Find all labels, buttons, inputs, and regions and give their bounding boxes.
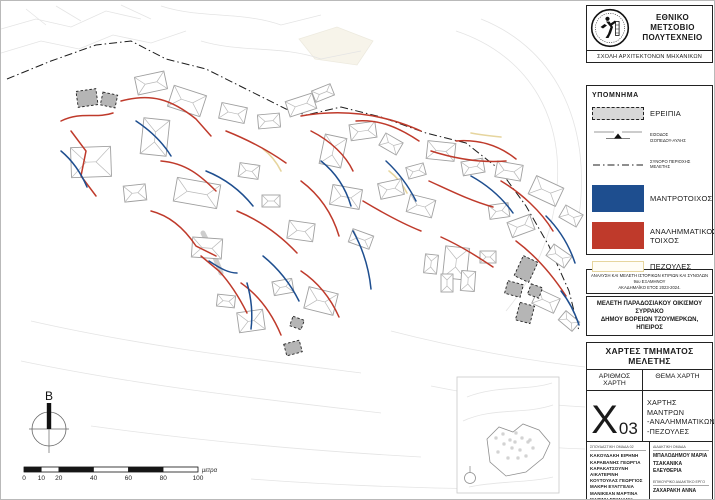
students-column: ΣΠΟΥΔΑΣΤΙΚΗ ΟΜΑΔΑ 02 ΚΑΚΟΥΔΑΚΗ ΕΙΡΗΝΗΚΑΡ…: [587, 442, 650, 500]
legend-item-retaining-wall: ΑΝΑΛΗΜΜΑΤΙΚΟΣ ΤΟΙΧΟΣ: [592, 222, 707, 249]
course-box: ΑΝΑΛΥΣΗ ΚΑΙ ΜΕΛΕΤΗ ΙΣΤΟΡΙΚΩΝ ΚΤΙΡΙΩΝ ΚΑΙ…: [586, 269, 713, 294]
legend-title: ΥΠΟΜΝΗΜΑ: [592, 92, 707, 99]
assistants-header: ΕΠΙΚΟΥΡΙΚΟ ΔΙΔΑΚΤΙΚΟ ΕΡΓΟ: [653, 480, 709, 486]
legend-label: ΕΡΕΙΠΙΑ: [650, 109, 681, 118]
assistants-list: ΖΑΧΑΡΑΚΗ ΑΝΝΑ: [653, 488, 709, 496]
boundary-line-symbol: [592, 155, 644, 173]
blue-wall-swatch: [592, 185, 644, 212]
svg-text:40: 40: [90, 475, 98, 482]
map-theme: ΧΑΡΤΗΣ ΜΑΝΤΡΩΝ -ΑΝΑΛΗΜΜΑΤΙΚΩΝ -ΠΕΖΟΥΛΕΣ: [643, 391, 715, 441]
svg-text:100: 100: [193, 475, 204, 482]
credits: ΣΠΟΥΔΑΣΤΙΚΗ ΟΜΑΔΑ 02 ΚΑΚΟΥΔΑΚΗ ΕΙΡΗΝΗΚΑΡ…: [587, 442, 712, 500]
legend-label: ΑΝΑΛΗΜΜΑΤΙΚΟΣ ΤΟΙΧΟΣ: [650, 227, 715, 245]
map-number: X 03: [587, 391, 643, 441]
legend-label: ΠΕΖΟΥΛΕΣ: [650, 262, 691, 271]
course-line: ΑΝΑΛΥΣΗ ΚΑΙ ΜΕΛΕΤΗ ΙΣΤΟΡΙΚΩΝ ΚΤΙΡΙΩΝ ΚΑΙ…: [589, 273, 710, 279]
svg-text:μετρα: μετρα: [201, 468, 218, 474]
credit-name: ΚΑΚΟΥΔΑΚΗ ΕΙΡΗΝΗ: [590, 453, 646, 459]
legend-item-boundary: ΣΥΝΟΡΟ ΠΕΡΙΟΧΗΣ ΜΕΛΕΤΗΣ: [592, 155, 707, 173]
credit-name: ΜΠΑΛΟΔΗΜΟΥ ΜΑΡΙΑ: [653, 453, 709, 461]
legend-item-entrance: ΕΙΣΟΔΟΣ ΙΣΟΠΕΔΟΥ-ΑΥΛΗΣ: [592, 128, 707, 147]
legend-item-mantrotoichos: ΜΑΝΤΡΟΤΟΙΧΟΣ: [592, 185, 707, 212]
teachers-header: ΔΙΔΑΚΤΙΚΗ ΟΜΑΔΑ: [653, 445, 709, 451]
map-table: ΧΑΡΤΕΣ ΤΜΗΜΑΤΟΣ ΜΕΛΕΤΗΣ ΑΡΙΘΜΟΣ ΧΑΡΤΗ ΘΕ…: [586, 342, 713, 500]
students-header: ΣΠΟΥΔΑΣΤΙΚΗ ΟΜΑΔΑ 02: [590, 445, 646, 451]
university-name-line: ΜΕΤΣΟΒΙΟ: [633, 23, 712, 33]
village-map-svg: Β01020406080100μετρα: [1, 1, 586, 500]
university-box: ΕΘΝΙΚΟ ΜΕΤΣΟΒΙΟ ΠΟΛΥΤΕΧΝΕΙΟ ΣΧΟΛΗ ΑΡΧΙΤΕ…: [586, 5, 713, 63]
school-name: ΣΧΟΛΗ ΑΡΧΙΤΕΚΤΟΝΩΝ ΜΗΧΑΝΙΚΩΝ: [587, 50, 712, 62]
ruins-swatch: [592, 107, 644, 120]
university-name: ΕΘΝΙΚΟ ΜΕΤΣΟΒΙΟ ΠΟΛΥΤΕΧΝΕΙΟ: [633, 13, 712, 43]
red-wall-swatch: [592, 222, 644, 249]
legend-item-pezoules: ΠΕΖΟΥΛΕΣ: [592, 261, 707, 272]
drawing-sheet: Β01020406080100μετρα: [0, 0, 715, 500]
project-title-box: ΜΕΛΕΤΗ ΠΑΡΑΔΟΣΙΑΚΟΥ ΟΙΚΙΣΜΟΥ ΣΥΡΡΑΚΟ ΔΗΜ…: [586, 296, 713, 336]
credit-name: ΤΣΑΚΑΝΙΚΑ ΕΛΕΥΘΕΡΙΑ: [653, 461, 709, 476]
project-title-line: ΜΕΛΕΤΗ ΠΑΡΑΔΟΣΙΑΚΟΥ ΟΙΚΙΣΜΟΥ ΣΥΡΡΑΚΟ: [588, 300, 711, 316]
credit-name: ΖΑΧΑΡΑΚΗ ΑΝΝΑ: [653, 488, 709, 496]
university-name-line: ΕΘΝΙΚΟ: [633, 13, 712, 23]
svg-text:Β: Β: [45, 389, 53, 403]
ntua-seal-icon: [590, 8, 630, 48]
legend-label: ΜΑΝΤΡΟΤΟΙΧΟΣ: [650, 194, 712, 203]
ntua-seal: [587, 8, 633, 48]
entrance-symbol: [592, 128, 644, 147]
title-block: ΕΘΝΙΚΟ ΜΕΤΣΟΒΙΟ ΠΟΛΥΤΕΧΝΕΙΟ ΣΧΟΛΗ ΑΡΧΙΤΕ…: [586, 5, 713, 500]
map-table-title: ΧΑΡΤΕΣ ΤΜΗΜΑΤΟΣ ΜΕΛΕΤΗΣ: [587, 343, 712, 370]
map-number-main: X: [591, 403, 618, 437]
col-header-map-number: ΑΡΙΘΜΟΣ ΧΑΡΤΗ: [587, 370, 643, 390]
project-title-line: ΔΗΜΟΥ ΒΟΡΕΙΩΝ ΤΖΟΥΜΕΡΚΩΝ, ΗΠΕΙΡΟΣ: [588, 316, 711, 332]
boundary-line-icon: [592, 162, 644, 168]
teachers-list: ΜΠΑΛΟΔΗΜΟΥ ΜΑΡΙΑΤΣΑΚΑΝΙΚΑ ΕΛΕΥΘΕΡΙΑ: [653, 453, 709, 476]
credit-name: ΚΑΡΑΚΑΤΣΟΥΝΗ ΑΙΚΑΤΕΡΙΝΗ: [590, 466, 646, 478]
entrance-symbol-icon: [592, 128, 644, 142]
svg-text:0: 0: [22, 475, 26, 482]
col-header-map-theme: ΘΕΜΑ ΧΑΡΤΗ: [643, 370, 712, 390]
legend-label: ΣΥΝΟΡΟ ΠΕΡΙΟΧΗΣ ΜΕΛΕΤΗΣ: [650, 159, 690, 169]
university-name-line: ΠΟΛΥΤΕΧΝΕΙΟ: [633, 33, 712, 43]
map-number-sub: 03: [619, 420, 638, 437]
svg-text:20: 20: [55, 475, 63, 482]
credit-name: ΚΑΡΑΒΑΝΗΣ ΓΕΩΡΓΙΑ: [590, 460, 646, 466]
course-line: ΑΚΑΔΗΜΑΪΚΟ ΕΤΟΣ 2023-2024.: [589, 285, 710, 291]
teachers-column: ΔΙΔΑΚΤΙΚΗ ΟΜΑΔΑ ΜΠΑΛΟΔΗΜΟΥ ΜΑΡΙΑΤΣΑΚΑΝΙΚ…: [650, 442, 712, 500]
legend-label: ΕΙΣΟΔΟΣ ΙΣΟΠΕΔΟΥ-ΑΥΛΗΣ: [650, 132, 686, 142]
svg-text:10: 10: [38, 475, 46, 482]
legend-item-ruins: ΕΡΕΙΠΙΑ: [592, 107, 707, 120]
students-list: ΚΑΚΟΥΔΑΚΗ ΕΙΡΗΝΗΚΑΡΑΒΑΝΗΣ ΓΕΩΡΓΙΑΚΑΡΑΚΑΤ…: [590, 453, 646, 500]
legend-box: ΥΠΟΜΝΗΜΑ ΕΡΕΙΠΙΑ ΕΙΣΟΔΟΣ ΙΣΟΠΕΔΟΥ-ΑΥΛΗΣ: [586, 85, 713, 255]
svg-text:80: 80: [160, 475, 168, 482]
svg-text:60: 60: [125, 475, 133, 482]
credit-name: ΜΑΝΙΚΕΑΝ ΜΑΡΤΙΝΑ: [590, 491, 646, 497]
pezoules-swatch: [592, 261, 644, 272]
